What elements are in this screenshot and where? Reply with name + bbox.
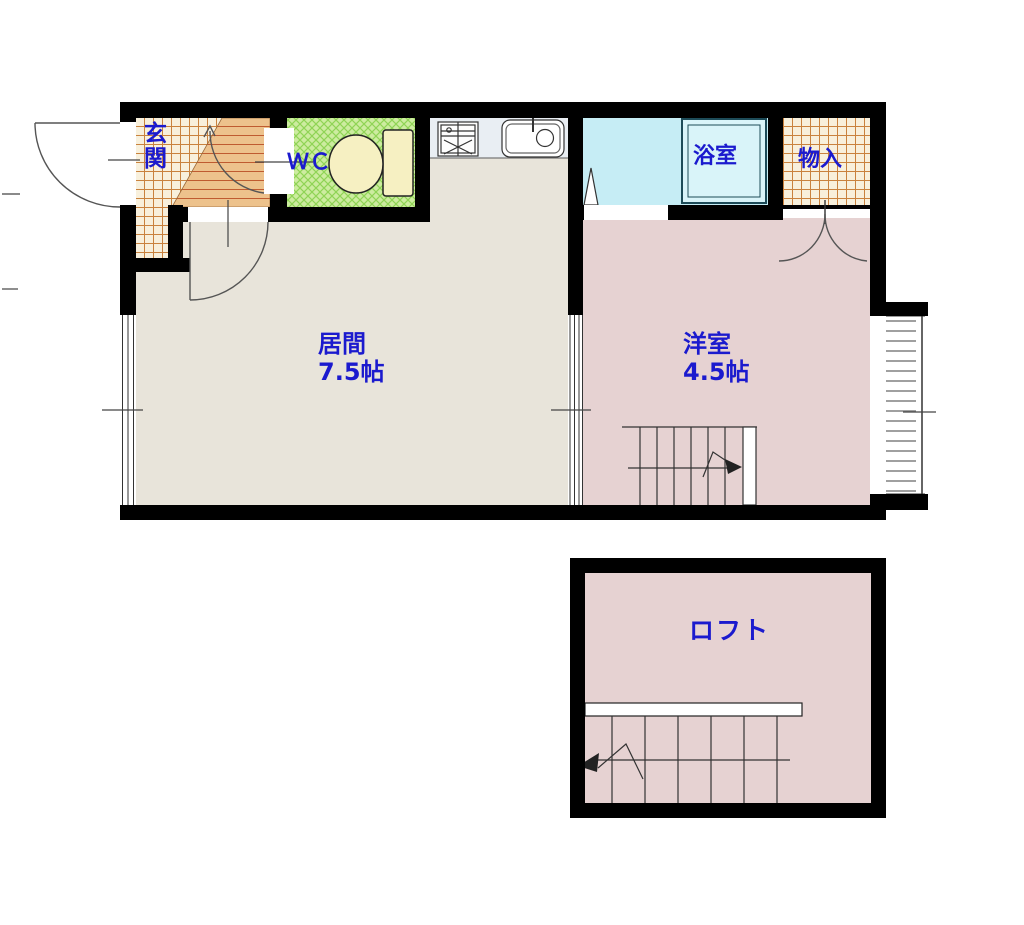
western-room-name: 洋室 — [683, 331, 750, 359]
wall-wc-right — [415, 102, 430, 222]
living-room-label: 居間 7.5帖 — [318, 331, 385, 386]
loft-label: ロフト — [689, 617, 770, 646]
storage-label: 物入 — [798, 147, 842, 172]
toilet-bowl — [329, 135, 383, 193]
wall-alcove-bottom — [120, 258, 190, 272]
wall-bottom — [120, 505, 886, 520]
loft-wall-left — [570, 558, 585, 818]
stove-icon — [438, 122, 478, 156]
bath-label: 浴室 — [693, 144, 737, 169]
genkan-alcove-floor — [136, 207, 168, 258]
louver-cap-top — [886, 302, 928, 316]
wall-left-stub — [120, 102, 136, 122]
storage-door-opening — [783, 209, 870, 218]
living-room-name: 居間 — [318, 331, 385, 359]
louver-cap-bottom — [886, 494, 928, 510]
loft-wall-right — [871, 558, 886, 818]
loft-wall-top — [570, 558, 886, 573]
western-room-label: 洋室 4.5帖 — [683, 331, 750, 386]
genkan-label: 玄関 — [139, 121, 165, 171]
storage-sill — [783, 205, 870, 209]
western-room-area: 4.5帖 — [683, 359, 750, 387]
sink-icon — [502, 113, 564, 157]
loft-floor — [585, 573, 871, 803]
floorplan-canvas: 玄関 ＷＣ 浴室 物入 居間 7.5帖 洋室 4.5帖 ロフト — [0, 0, 1024, 925]
wc-label: ＷＣ — [287, 150, 331, 175]
wall-mid-vertical — [568, 102, 583, 315]
toilet-icon — [329, 130, 413, 196]
exterior-louver-window — [886, 316, 925, 494]
wall-right-lower — [870, 494, 886, 520]
wall-tub-right — [768, 102, 783, 220]
living-room-area: 7.5帖 — [318, 359, 385, 387]
bath-door-opening — [584, 205, 668, 220]
toilet-tank — [383, 130, 413, 196]
front-door-opening — [120, 122, 136, 205]
front-door-swing — [35, 123, 120, 207]
loft-wall-bottom — [570, 803, 886, 818]
wall-right-upper — [870, 102, 886, 316]
